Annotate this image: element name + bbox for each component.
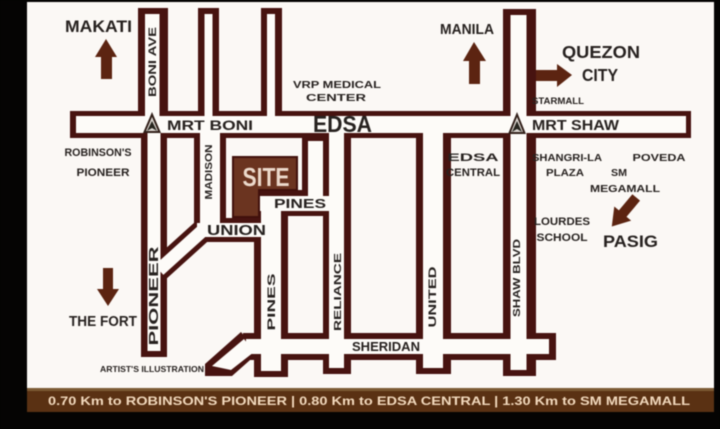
svg-text:RELIANCE: RELIANCE [332, 253, 344, 331]
svg-text:EDSA: EDSA [313, 111, 372, 137]
svg-text:0.70 Km to ROBINSON'S PIONEER: 0.70 Km to ROBINSON'S PIONEER | 0.80 Km … [48, 394, 690, 408]
svg-text:PINES: PINES [274, 196, 326, 211]
svg-text:POVEDA: POVEDA [633, 152, 686, 164]
svg-text:PASIG: PASIG [603, 233, 658, 251]
svg-text:BONI AVE: BONI AVE [147, 27, 159, 97]
svg-text:SCHOOL: SCHOOL [537, 232, 588, 244]
svg-text:QUEZON: QUEZON [562, 42, 640, 62]
svg-text:SHERIDAN: SHERIDAN [352, 340, 420, 354]
svg-text:ARTIST'S ILLUSTRATION: ARTIST'S ILLUSTRATION [100, 364, 204, 374]
svg-text:PIONEER: PIONEER [146, 245, 161, 345]
svg-text:LOURDES: LOURDES [534, 216, 590, 228]
svg-text:MAKATI: MAKATI [65, 18, 132, 36]
svg-text:CITY: CITY [582, 65, 618, 85]
svg-text:EDSA: EDSA [448, 152, 499, 164]
svg-text:MRT BONI: MRT BONI [167, 117, 253, 133]
svg-text:SITE: SITE [243, 162, 290, 192]
svg-text:STARMALL: STARMALL [532, 96, 585, 106]
svg-text:SHAW BLVD: SHAW BLVD [511, 238, 523, 317]
svg-text:SM: SM [611, 167, 627, 179]
svg-text:THE FORT: THE FORT [69, 314, 137, 330]
svg-text:UNITED: UNITED [427, 266, 439, 327]
svg-text:PIONEER: PIONEER [77, 167, 130, 179]
svg-text:CENTRAL: CENTRAL [446, 167, 500, 179]
svg-text:UNION: UNION [207, 223, 266, 239]
svg-text:MRT SHAW: MRT SHAW [532, 117, 620, 134]
svg-text:MANILA: MANILA [440, 22, 494, 38]
svg-text:MEGAMALL: MEGAMALL [590, 183, 661, 195]
svg-text:CENTER: CENTER [306, 92, 367, 104]
svg-text:MADISON: MADISON [204, 145, 215, 200]
svg-text:SHANGRI-LA: SHANGRI-LA [532, 152, 602, 164]
svg-text:VRP MEDICAL: VRP MEDICAL [293, 79, 382, 91]
svg-text:PINES: PINES [266, 274, 278, 331]
svg-text:ROBINSON'S: ROBINSON'S [65, 147, 132, 159]
svg-text:PLAZA: PLAZA [546, 167, 584, 179]
